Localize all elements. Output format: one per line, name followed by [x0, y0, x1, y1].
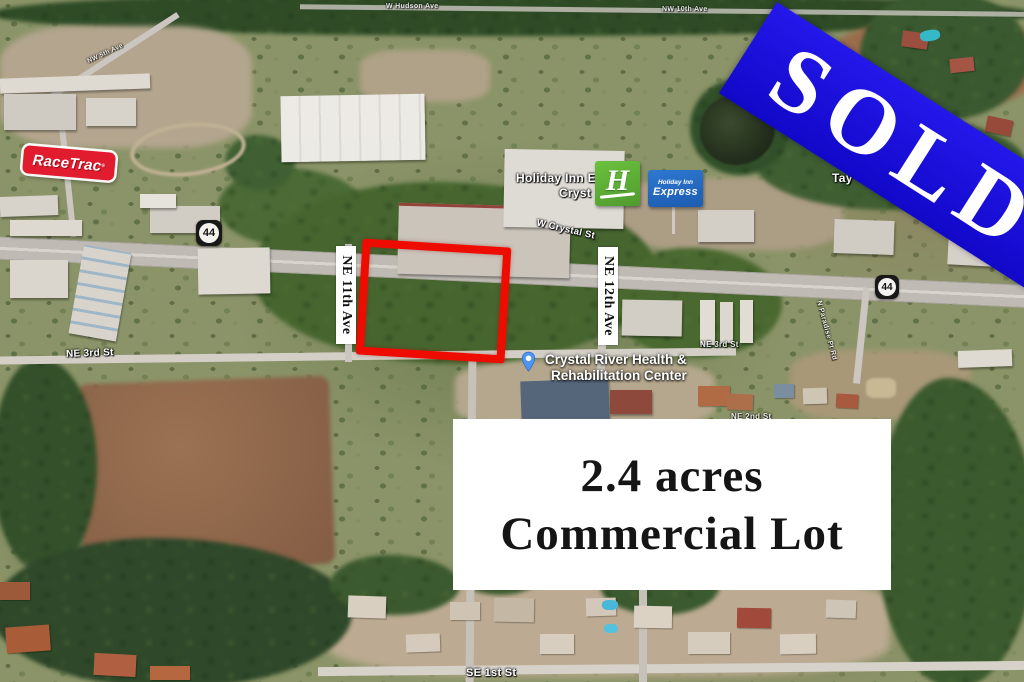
building	[198, 247, 271, 294]
racetrac-logo-text: RaceTrac	[32, 151, 102, 174]
house-red-roof	[836, 393, 859, 408]
holiday-inn-express-line1: Holiday Inn	[648, 179, 703, 186]
route-number: 44	[881, 282, 892, 293]
registered-mark-icon: ®	[101, 163, 105, 169]
house-orange-roof	[93, 653, 136, 677]
rehab-center-line2: Rehabilitation Center	[551, 368, 687, 384]
lot-boundary-outline	[356, 239, 512, 364]
building	[698, 210, 754, 242]
holiday-inn-map-label-line1: Holiday Inn E	[516, 171, 596, 185]
house-blue-roof	[774, 384, 794, 398]
house	[540, 634, 574, 654]
holiday-inn-map-label-line2: Cryst	[559, 186, 591, 200]
listing-info-box: 2.4 acres Commercial Lot	[453, 419, 891, 590]
house-orange-roof	[5, 624, 51, 653]
building	[0, 195, 58, 217]
rehab-center-label: Crystal River Health & Rehabilitation Ce…	[545, 352, 687, 384]
house-red-roof	[737, 608, 771, 629]
house	[826, 599, 857, 618]
building	[622, 299, 683, 336]
sign-pole	[672, 206, 675, 234]
house-red-roof	[949, 57, 974, 73]
forest-bottom-right	[876, 378, 1024, 682]
street-label-top-right: NW 10th Ave	[662, 6, 708, 13]
building	[958, 349, 1013, 368]
house	[450, 602, 480, 620]
listing-acreage: 2.4 acres	[580, 450, 763, 502]
house	[803, 388, 828, 405]
building-large-white-warehouse	[280, 94, 425, 163]
street-label-se-1st-st: SE 1st St	[466, 667, 516, 679]
house	[494, 598, 534, 623]
building	[833, 219, 894, 255]
culdesac	[866, 378, 896, 398]
route-number: 44	[203, 227, 215, 239]
building-mobile-home	[720, 302, 733, 343]
house	[348, 595, 387, 618]
listing-type: Commercial Lot	[500, 508, 843, 560]
overlay-label-ne-12th-ave: NE 12th Ave	[598, 247, 618, 345]
building-mobile-home	[700, 300, 715, 345]
building-annex	[610, 390, 652, 414]
racetrac-sign: RaceTrac®	[22, 145, 116, 181]
house-orange-roof	[698, 386, 730, 406]
route-44-shield-left: 44	[196, 220, 222, 246]
street-label-ne-3rd-st-small: NE 3rd St	[700, 340, 739, 349]
holiday-inn-logo: H	[595, 161, 640, 206]
rehab-center-line1: Crystal River Health &	[545, 352, 687, 368]
holiday-inn-express-sign: Holiday Inn Express	[648, 170, 703, 207]
holiday-inn-express-line2: Express	[648, 187, 703, 198]
building-gas-canopy	[140, 194, 176, 208]
house	[406, 633, 441, 652]
house-orange-roof	[150, 666, 190, 680]
road-vertical-bottom	[639, 586, 647, 682]
building	[4, 94, 76, 130]
house-orange-roof	[0, 582, 30, 600]
swimming-pool	[602, 600, 618, 610]
aerial-listing-image: NE 3rd St W Crystal St SE 1st St Tay NE …	[0, 0, 1024, 682]
house	[780, 634, 816, 655]
street-label-top-left: W Hudson Ave	[386, 3, 438, 10]
building	[10, 220, 82, 236]
route-44-shield-right: 44	[875, 275, 899, 299]
building	[10, 260, 68, 298]
overlay-label-ne-11th-ave: NE 11th Ave	[336, 246, 356, 344]
holiday-inn-h-monogram-icon: H	[606, 166, 629, 196]
house	[688, 632, 730, 654]
house-orange-roof	[727, 394, 754, 411]
map-pin-icon	[521, 350, 536, 374]
building-rehab-center	[520, 378, 609, 423]
building	[86, 98, 136, 126]
street-label-ne-3rd-st: NE 3rd St	[66, 347, 114, 360]
building-mobile-home	[740, 300, 753, 343]
swimming-pool	[604, 624, 618, 633]
house	[634, 606, 672, 629]
